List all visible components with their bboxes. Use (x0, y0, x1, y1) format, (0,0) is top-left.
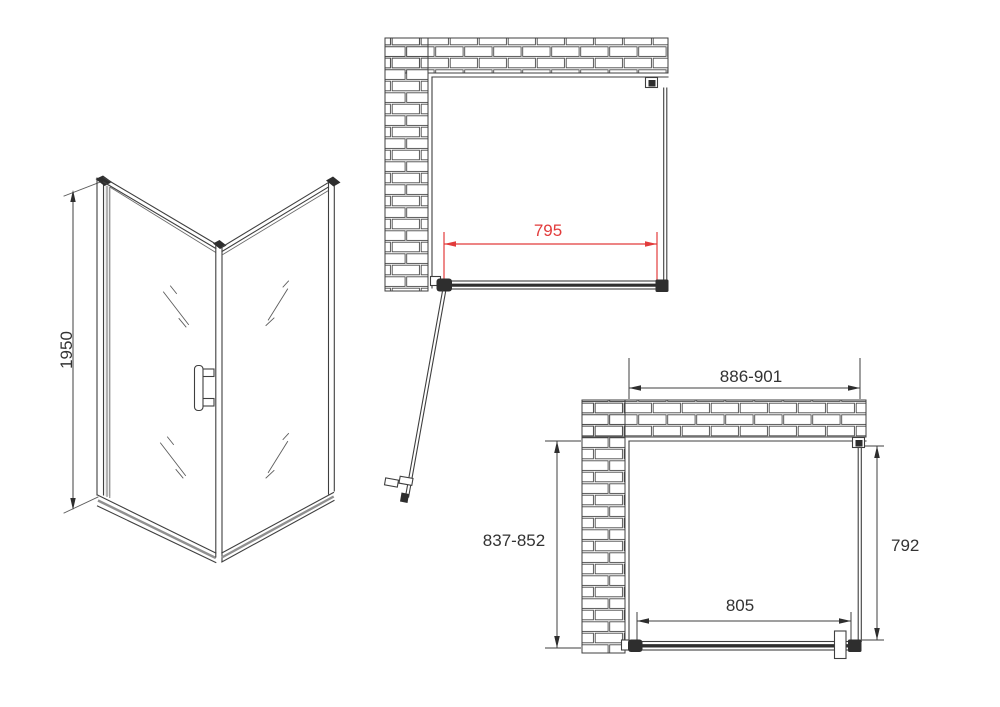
door-handle-plan (835, 631, 847, 659)
height-dimension-label: 1950 (57, 331, 76, 369)
overall-depth-dimension-label: 837-852 (483, 531, 545, 550)
wall-left (385, 38, 428, 291)
door-opening-dimension-label: 805 (726, 596, 754, 615)
overall-depth-dimension: 837-852 (483, 441, 581, 648)
overall-width-dimension: 886-901 (629, 358, 860, 399)
open-door-handle (384, 478, 398, 487)
corner-post (213, 240, 227, 561)
glass-reflections-side (266, 281, 289, 478)
arrow-down-icon (554, 636, 560, 648)
door-hinge (437, 279, 453, 292)
side-panel-dimension: 792 (862, 446, 919, 640)
arrow-left-icon (629, 385, 641, 391)
door-opening-dimension: 805 (637, 596, 851, 645)
door-closed-plan (622, 631, 862, 659)
technical-drawing-page: 1950 (0, 0, 1000, 707)
corner-connector (848, 640, 862, 653)
corner-connector (656, 280, 669, 293)
glass-reflections-door (161, 286, 189, 478)
door-closed-plan (431, 277, 669, 293)
door-open-plan (384, 291, 445, 503)
arrow-down-icon (874, 628, 880, 640)
open-door-handle (399, 476, 413, 485)
door-width-dimension-label: 795 (534, 221, 562, 240)
door-end-cap (400, 493, 409, 504)
door-handle (195, 366, 215, 411)
side-panel-plan (853, 438, 865, 642)
side-panel-dimension-label: 792 (891, 536, 919, 555)
overall-width-dimension-label: 886-901 (720, 367, 782, 386)
arrow-up-icon (554, 441, 560, 453)
height-dimension: 1950 (57, 181, 103, 513)
side-panel-plan (646, 78, 667, 282)
bottom-plan-view: 886-901 837-852 792 805 (483, 358, 920, 659)
door-width-dimension: 795 (444, 221, 657, 287)
door-hinge (628, 640, 643, 653)
arrow-left-icon (444, 241, 456, 247)
side-panel-frame (222, 177, 341, 563)
arrow-right-icon (848, 385, 860, 391)
arrow-right-icon (645, 241, 657, 247)
shower-enclosure-drawing: 1950 (0, 0, 1000, 707)
wall-left (582, 400, 625, 653)
arrow-up-icon (874, 446, 880, 458)
hinge-plate (622, 640, 630, 650)
isometric-view: 1950 (57, 176, 341, 563)
arrow-left-icon (637, 618, 649, 624)
arrow-right-icon (839, 618, 851, 624)
